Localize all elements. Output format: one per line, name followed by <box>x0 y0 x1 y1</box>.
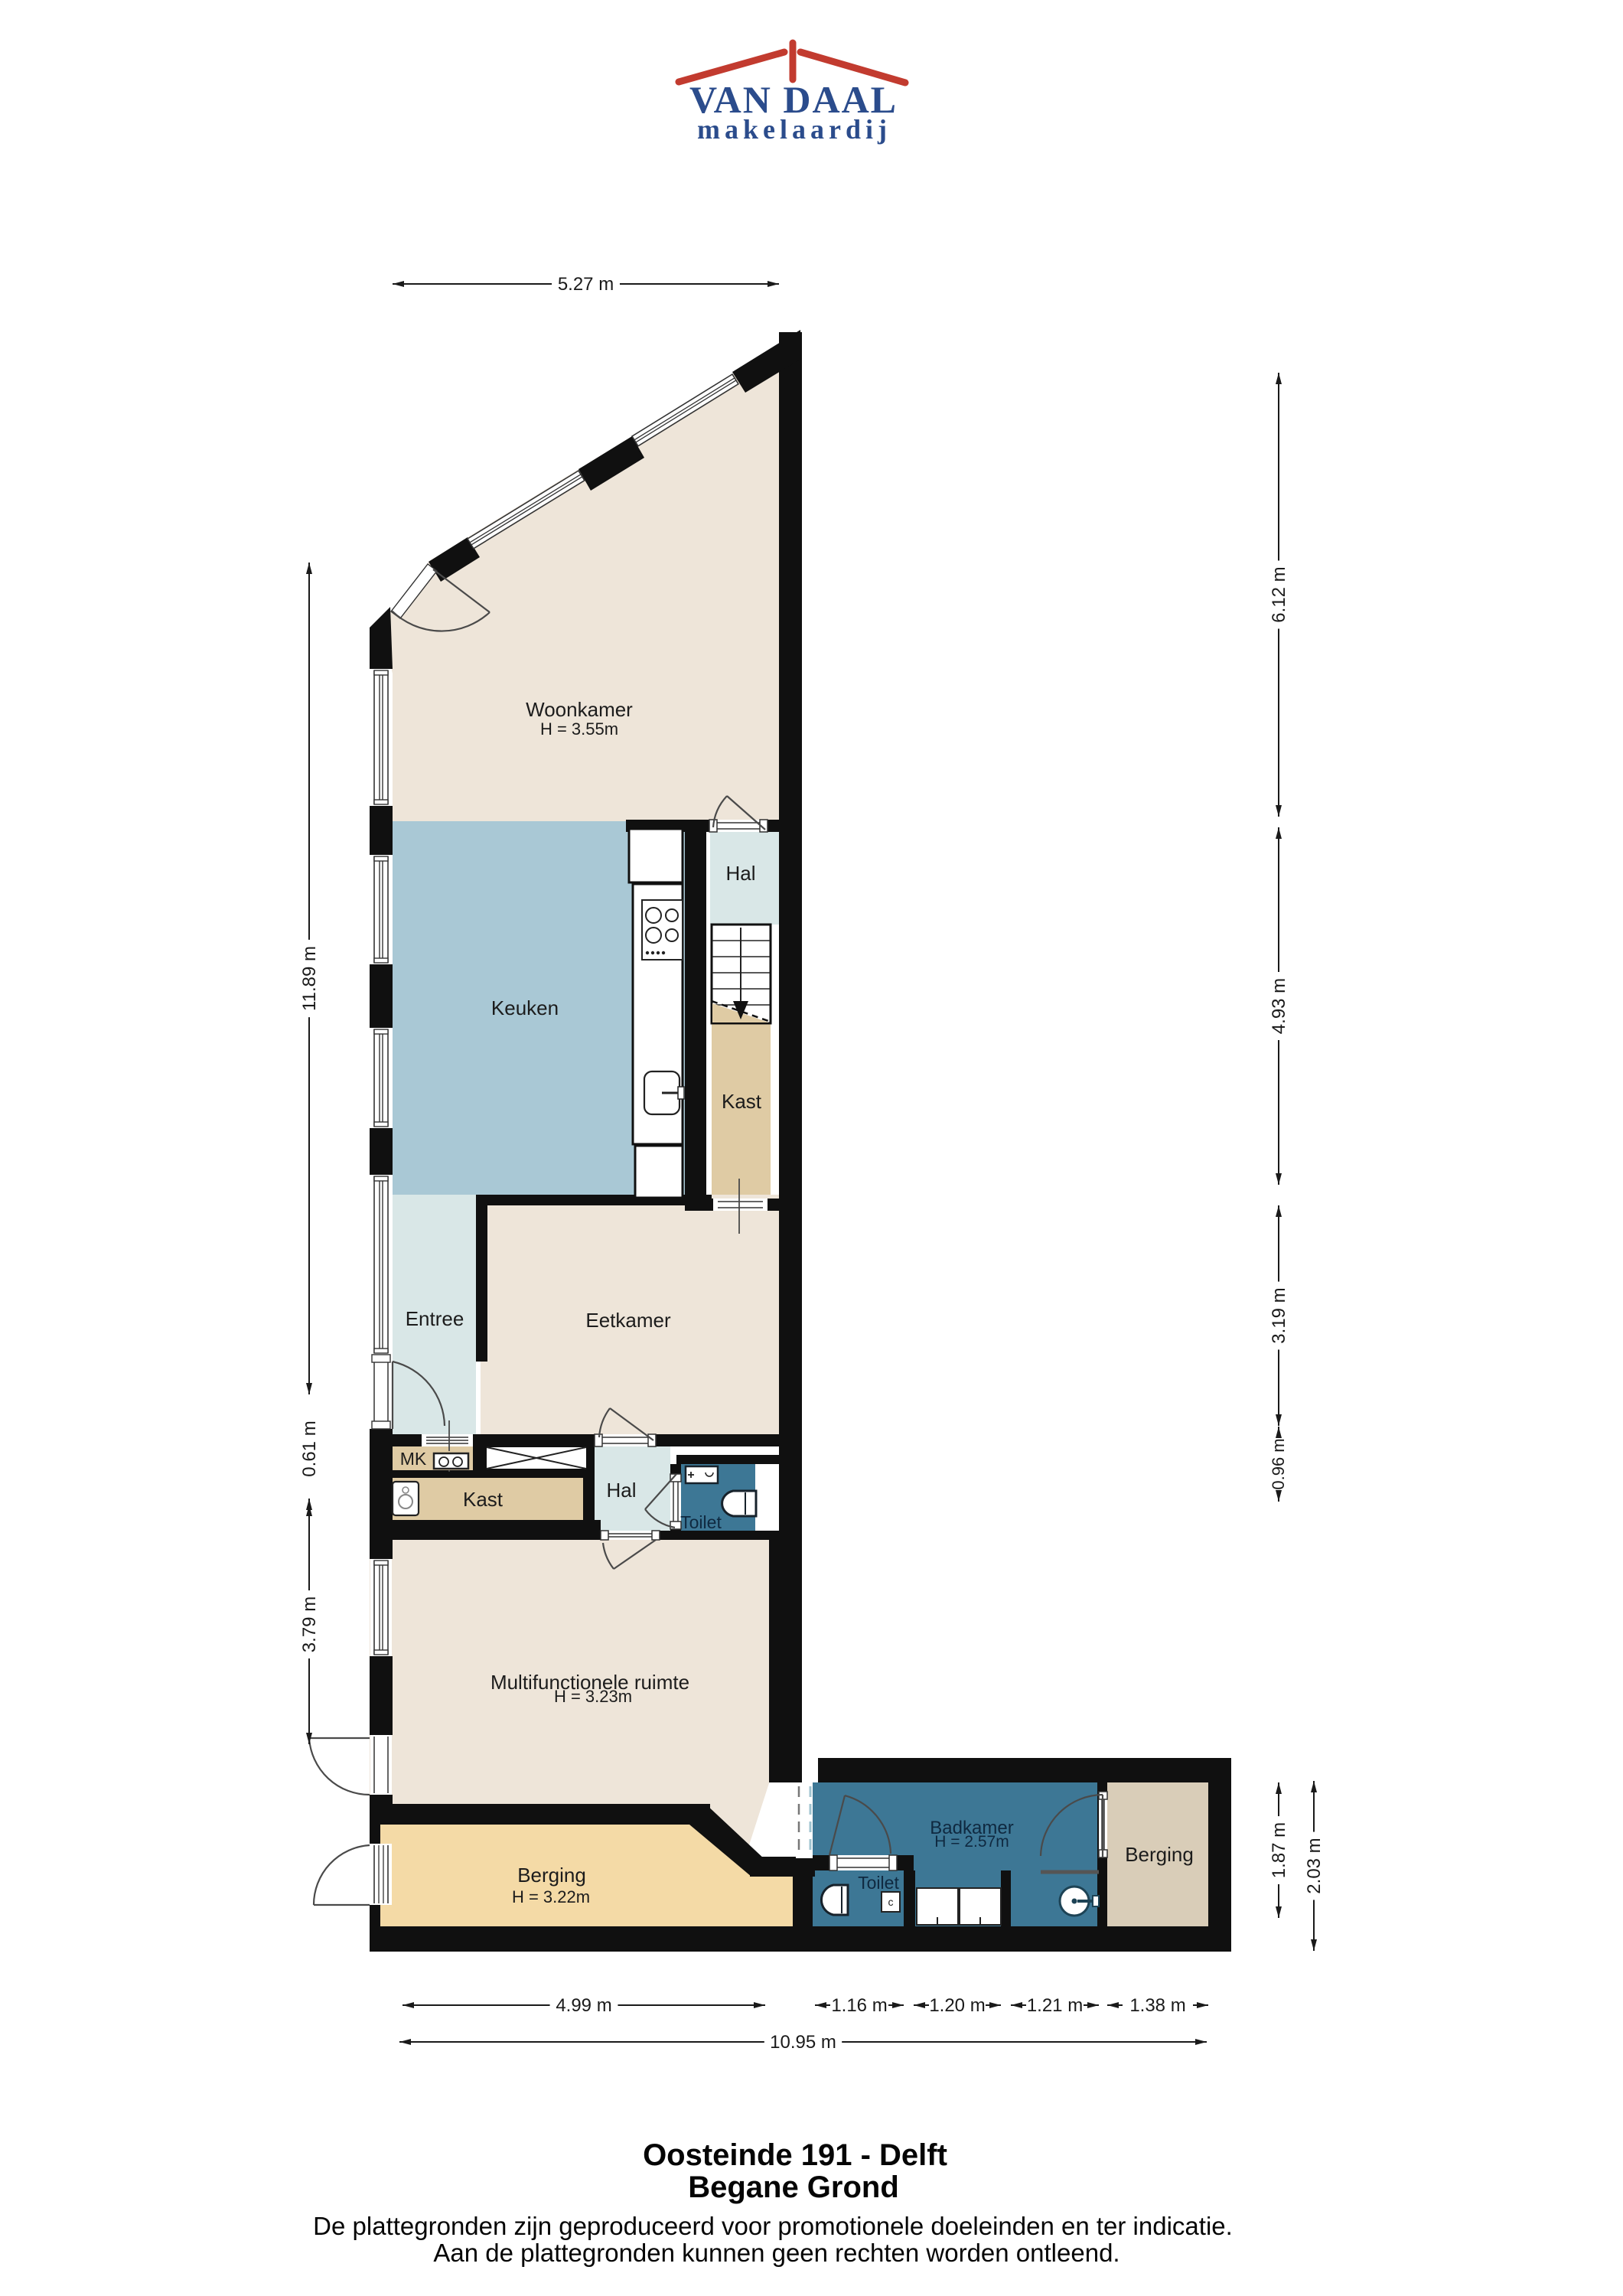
svg-text:1.21 m: 1.21 m <box>1027 1995 1083 2016</box>
svg-text:H = 3.22m: H = 3.22m <box>512 1887 590 1906</box>
svg-text:4.99 m: 4.99 m <box>556 1995 611 2016</box>
svg-text:Aan de plattegronden kunnen ge: Aan de plattegronden kunnen geen rechten… <box>433 2239 1119 2267</box>
svg-text:De plattegronden zijn geproduc: De plattegronden zijn geproduceerd voor … <box>313 2212 1233 2240</box>
svg-text:Kast: Kast <box>722 1090 762 1113</box>
svg-text:Toilet: Toilet <box>680 1512 722 1532</box>
svg-text:H = 3.55m: H = 3.55m <box>540 719 618 739</box>
svg-text:4.93 m: 4.93 m <box>1269 978 1289 1034</box>
svg-text:Kast: Kast <box>463 1488 504 1511</box>
svg-text:Eetkamer: Eetkamer <box>585 1309 671 1332</box>
svg-text:H = 2.57m: H = 2.57m <box>934 1833 1009 1851</box>
svg-text:5.27 m: 5.27 m <box>558 274 614 295</box>
svg-text:makelaardij: makelaardij <box>697 114 891 145</box>
svg-text:Keuken: Keuken <box>491 996 559 1019</box>
svg-text:Begane Grond: Begane Grond <box>688 2170 899 2204</box>
svg-text:0.61 m: 0.61 m <box>299 1420 320 1476</box>
svg-text:H = 3.23m: H = 3.23m <box>554 1687 632 1706</box>
svg-text:2.03 m: 2.03 m <box>1304 1838 1325 1893</box>
svg-text:Berging: Berging <box>517 1864 586 1887</box>
svg-text:1.87 m: 1.87 m <box>1269 1822 1289 1878</box>
svg-text:0.96 m: 0.96 m <box>1269 1438 1288 1489</box>
svg-text:Berging: Berging <box>1125 1843 1194 1866</box>
svg-text:Oosteinde 191 - Delft: Oosteinde 191 - Delft <box>643 2138 947 2172</box>
svg-text:1.38 m: 1.38 m <box>1129 1995 1185 2016</box>
svg-text:10.95 m: 10.95 m <box>770 2032 836 2053</box>
svg-text:Woonkamer: Woonkamer <box>526 698 633 721</box>
svg-text:c: c <box>888 1896 894 1908</box>
svg-text:6.12 m: 6.12 m <box>1269 566 1289 622</box>
svg-text:MK: MK <box>400 1449 427 1469</box>
svg-text:3.79 m: 3.79 m <box>299 1596 320 1652</box>
svg-text:Entree: Entree <box>406 1307 464 1330</box>
svg-text:Hal: Hal <box>725 862 755 885</box>
svg-text:Toilet: Toilet <box>858 1873 899 1893</box>
svg-text:1.20 m: 1.20 m <box>929 1995 985 2016</box>
svg-text:Hal: Hal <box>606 1479 636 1502</box>
svg-text:1.16 m: 1.16 m <box>831 1995 887 2016</box>
svg-text:11.89 m: 11.89 m <box>299 946 320 1011</box>
svg-text:3.19 m: 3.19 m <box>1269 1287 1289 1343</box>
